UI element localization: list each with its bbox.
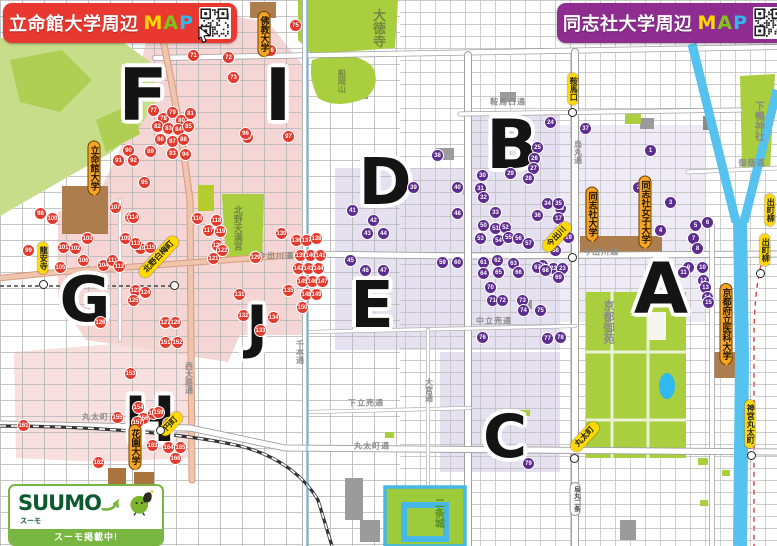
station-label: 北野白梅町	[137, 234, 182, 280]
red-property-marker: 132	[237, 309, 250, 322]
red-property-marker: 128	[169, 316, 182, 329]
red-property-marker: 153	[124, 367, 137, 380]
red-property-marker: 150	[296, 301, 309, 314]
purple-property-marker: 74	[517, 304, 530, 317]
red-property-marker: 102	[69, 242, 82, 255]
station-label: 出町柳	[765, 194, 775, 226]
station-dot	[156, 426, 165, 435]
purple-property-marker: 28	[522, 172, 535, 185]
road-name-label: 大宮通	[424, 378, 435, 402]
red-property-marker: 81	[184, 107, 197, 120]
purple-property-marker: 40	[451, 181, 464, 194]
road-name-label: 西大路通	[184, 362, 195, 394]
suumo-brand-text: SUUMO	[18, 493, 101, 514]
purple-property-marker: 75	[534, 304, 547, 317]
road-name-label: 今出川通	[258, 251, 294, 262]
university-label: 京都府立医科大学	[720, 283, 733, 365]
red-property-marker: 114	[127, 211, 140, 224]
purple-property-marker: 47	[377, 264, 390, 277]
zone-letter-e: E	[350, 274, 394, 338]
red-property-marker: 105	[54, 261, 67, 274]
red-property-marker: 129	[249, 251, 262, 264]
purple-property-marker: 42	[367, 214, 380, 227]
red-property-marker: 75	[289, 19, 302, 32]
map-screenshot: FIGJHDEBCA717273747576777879808182838485…	[0, 0, 777, 546]
red-property-marker: 135	[282, 284, 295, 297]
red-property-marker: 71	[187, 49, 200, 62]
place-label: 北野天満宮	[232, 206, 242, 251]
red-property-marker: 85	[182, 120, 195, 133]
purple-property-marker: 76	[476, 331, 489, 344]
red-property-marker: 161	[17, 419, 30, 432]
university-label: 佛教大学	[258, 11, 271, 57]
purple-property-marker: 41	[346, 204, 359, 217]
road-name-label: 中立売通	[476, 316, 512, 327]
purple-property-marker: 11	[677, 266, 690, 279]
purple-property-marker: 36	[531, 209, 544, 222]
station-dot	[39, 280, 48, 289]
station-dot	[568, 108, 577, 117]
banner-title-left: 立命館大学周辺	[9, 10, 139, 36]
purple-property-marker: 10	[696, 261, 709, 274]
purple-property-marker: 1	[644, 144, 657, 157]
mouse-cursor-icon	[198, 26, 212, 44]
zone-letter-d: D	[358, 151, 411, 215]
red-property-marker: 133	[254, 324, 267, 337]
zone-letter-c: C	[483, 407, 527, 467]
red-property-marker: 72	[222, 51, 235, 64]
red-property-marker: 93	[166, 147, 179, 160]
station-dot	[570, 454, 579, 463]
purple-property-marker: 60	[451, 256, 464, 269]
red-property-marker: 122	[216, 244, 229, 257]
red-property-marker: 106	[77, 254, 90, 267]
purple-property-marker: 33	[489, 206, 502, 219]
red-property-marker: 134	[267, 311, 280, 324]
purple-property-marker: 46	[359, 264, 372, 277]
purple-property-marker: 24	[544, 116, 557, 129]
suumo-banner-text: スーモ掲載中!	[10, 529, 162, 544]
purple-property-marker: 3	[664, 196, 677, 209]
station-label: 出町柳	[760, 234, 770, 266]
banner-map-word-right: MAP	[698, 12, 749, 34]
university-label: 同志社女子大学	[639, 176, 652, 249]
red-property-marker: 125	[127, 294, 140, 307]
red-property-marker: 119	[214, 225, 227, 238]
red-property-marker: 113	[129, 237, 142, 250]
suumo-mascot-icon	[126, 488, 156, 518]
red-property-marker: 103	[81, 232, 94, 245]
red-property-marker: 159	[152, 406, 165, 419]
purple-property-marker: 32	[477, 191, 490, 204]
red-property-marker: 144	[312, 262, 325, 275]
station-label: 神宮丸太町	[745, 400, 755, 448]
station-label: 烏丸二条	[570, 482, 581, 516]
red-property-marker: 124	[139, 286, 152, 299]
road-name-label: 丸太町通	[354, 441, 390, 452]
station-dot	[568, 253, 577, 262]
red-property-marker: 99	[22, 244, 35, 257]
place-label: 二条城	[432, 498, 443, 528]
red-property-marker: 96	[239, 127, 252, 140]
zone-letter-a: A	[634, 254, 688, 324]
qr-code-right	[753, 7, 777, 39]
university-label: 花園大学	[129, 424, 142, 470]
road-name-label: 千本通	[295, 340, 306, 364]
red-property-marker: 166	[169, 452, 182, 465]
red-property-marker: 155	[111, 411, 124, 424]
purple-property-marker: 65	[492, 266, 505, 279]
red-property-marker: 131	[233, 288, 246, 301]
suumo-arrow-icon	[101, 492, 124, 514]
red-property-marker: 162	[92, 456, 105, 469]
red-property-marker: 163	[146, 439, 159, 452]
purple-property-marker: 48	[451, 207, 464, 220]
purple-property-marker: 38	[431, 149, 444, 162]
banner-map-word-left: MAP	[144, 12, 195, 34]
station-label: 丸太町	[568, 420, 602, 455]
road-name-label: 御蔭通	[739, 158, 766, 169]
red-property-marker: 141	[314, 249, 327, 262]
red-property-marker: 92	[127, 154, 140, 167]
place-label: 京都御苑	[601, 300, 613, 344]
red-property-marker: 100	[46, 212, 59, 225]
red-property-marker: 116	[191, 212, 204, 225]
station-label: 鞍馬口	[568, 73, 578, 105]
purple-property-marker: 35	[552, 197, 565, 210]
purple-property-marker: 77	[541, 332, 554, 345]
university-label: 同志社大学	[586, 187, 599, 242]
red-property-marker: 152	[171, 336, 184, 349]
purple-property-marker: 8	[691, 242, 704, 255]
purple-property-marker: 66	[512, 266, 525, 279]
banner-title-right: 同志社大学周辺	[563, 10, 693, 36]
red-property-marker: 126	[94, 316, 107, 329]
red-property-marker: 91	[112, 154, 125, 167]
red-property-marker: 147	[316, 275, 329, 288]
red-property-marker: 86	[154, 133, 167, 146]
red-property-marker: 88	[177, 133, 190, 146]
map-overlay: FIGJHDEBCA717273747576777879808182838485…	[0, 0, 777, 546]
place-label: 下鴨神社	[752, 101, 763, 141]
station-label: 龍安寺	[38, 242, 48, 274]
red-property-marker: 94	[179, 148, 192, 161]
purple-property-marker: 45	[344, 254, 357, 267]
red-property-marker: 95	[138, 176, 151, 189]
purple-property-marker: 78	[554, 331, 567, 344]
red-property-marker: 89	[144, 145, 157, 158]
road-name-label: 烏丸通	[573, 140, 584, 164]
place-label: 船岡山	[337, 69, 346, 93]
purple-property-marker: 53	[474, 232, 487, 245]
purple-property-marker: 15	[702, 296, 715, 309]
red-property-marker: 138	[310, 232, 323, 245]
red-property-marker: 73	[227, 71, 240, 84]
red-property-marker: 112	[113, 260, 126, 273]
purple-property-marker: 29	[504, 167, 517, 180]
station-dot	[170, 281, 179, 290]
purple-property-marker: 43	[361, 227, 374, 240]
red-property-marker: 149	[310, 288, 323, 301]
purple-property-marker: 44	[377, 227, 390, 240]
purple-property-marker: 50	[477, 219, 490, 232]
zone-letter-i: I	[265, 59, 292, 131]
purple-property-marker: 64	[477, 267, 490, 280]
purple-property-marker: 72	[496, 294, 509, 307]
red-property-marker: 97	[282, 130, 295, 143]
purple-property-marker: 30	[476, 169, 489, 182]
road-name-label: 下立売通	[348, 398, 384, 409]
purple-property-marker: 57	[522, 237, 535, 250]
red-property-marker: 130	[275, 227, 288, 240]
station-dot	[756, 269, 765, 278]
purple-property-marker: 68	[539, 264, 552, 277]
purple-property-marker: 4	[654, 224, 667, 237]
road-name-label: 今出川通	[583, 247, 619, 258]
purple-property-marker: 69	[552, 271, 565, 284]
university-label: 立命館大学	[88, 141, 101, 196]
purple-property-marker: 39	[407, 181, 420, 194]
purple-property-marker: 59	[436, 256, 449, 269]
suumo-logo-box: SUUMO スーモ スーモ掲載中!	[8, 484, 164, 546]
purple-property-marker: 79	[522, 457, 535, 470]
red-property-marker: 107	[109, 201, 122, 214]
purple-property-marker: 6	[701, 216, 714, 229]
station-dot	[747, 451, 756, 460]
purple-property-marker: 37	[579, 122, 592, 135]
place-label: 大徳寺	[371, 9, 385, 48]
purple-property-marker: 70	[484, 281, 497, 294]
doshisha-map-banner: 同志社大学周辺 MAP	[557, 3, 777, 43]
